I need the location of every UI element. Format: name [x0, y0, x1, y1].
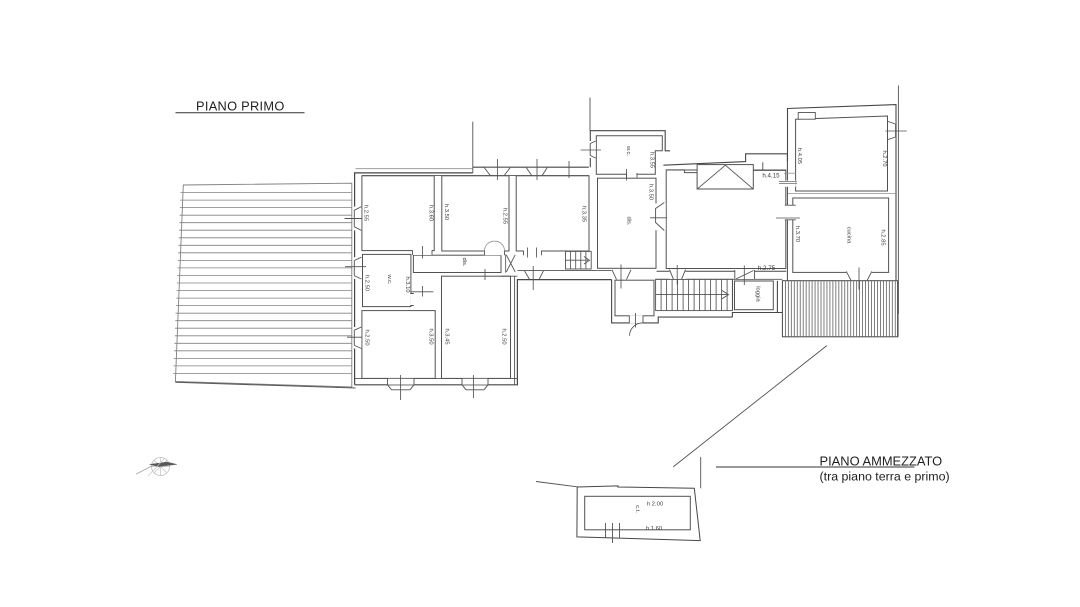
svg-text:cucina: cucina [846, 227, 852, 245]
svg-text:h.3.35: h.3.35 [581, 206, 587, 222]
svg-text:h 2.00: h 2.00 [647, 502, 663, 508]
svg-text:h.3.55: h.3.55 [649, 152, 655, 168]
svg-text:w.c.: w.c. [625, 145, 631, 156]
svg-text:h.4.15: h.4.15 [762, 173, 780, 180]
svg-text:h.3.60: h.3.60 [428, 205, 434, 221]
svg-text:h.3.50: h.3.50 [443, 204, 449, 220]
svg-text:(tra piano terra e primo): (tra piano terra e primo) [820, 469, 950, 483]
svg-text:h.2.75: h.2.75 [758, 265, 776, 272]
svg-text:PIANO PRIMO: PIANO PRIMO [196, 99, 285, 114]
svg-text:PIANO AMMEZZATO: PIANO AMMEZZATO [820, 453, 943, 468]
svg-text:h.3.50: h.3.50 [428, 328, 434, 344]
svg-text:h.2.55: h.2.55 [502, 208, 508, 224]
svg-text:w.c.: w.c. [386, 274, 392, 285]
svg-text:h.2.50: h.2.50 [364, 275, 370, 291]
svg-text:h.2.55: h.2.55 [363, 205, 369, 221]
svg-text:h.3.50: h.3.50 [648, 184, 654, 200]
svg-text:h.3.45: h.3.45 [444, 328, 450, 344]
svg-text:h.2.70: h.2.70 [881, 150, 887, 166]
svg-text:h.3.10: h.3.10 [404, 276, 410, 292]
svg-text:c.t.: c.t. [634, 505, 640, 513]
svg-text:h.3.70: h.3.70 [794, 226, 800, 242]
svg-text:h.4.05: h.4.05 [796, 148, 802, 164]
svg-text:h.2.85: h.2.85 [880, 229, 886, 245]
svg-text:dis.: dis. [461, 257, 467, 266]
svg-text:h 1.60: h 1.60 [646, 526, 662, 532]
svg-text:h.2.50: h.2.50 [501, 328, 507, 344]
svg-text:h.2.50: h.2.50 [364, 329, 370, 345]
svg-text:loggia: loggia [755, 286, 761, 302]
svg-text:dis.: dis. [626, 216, 632, 225]
